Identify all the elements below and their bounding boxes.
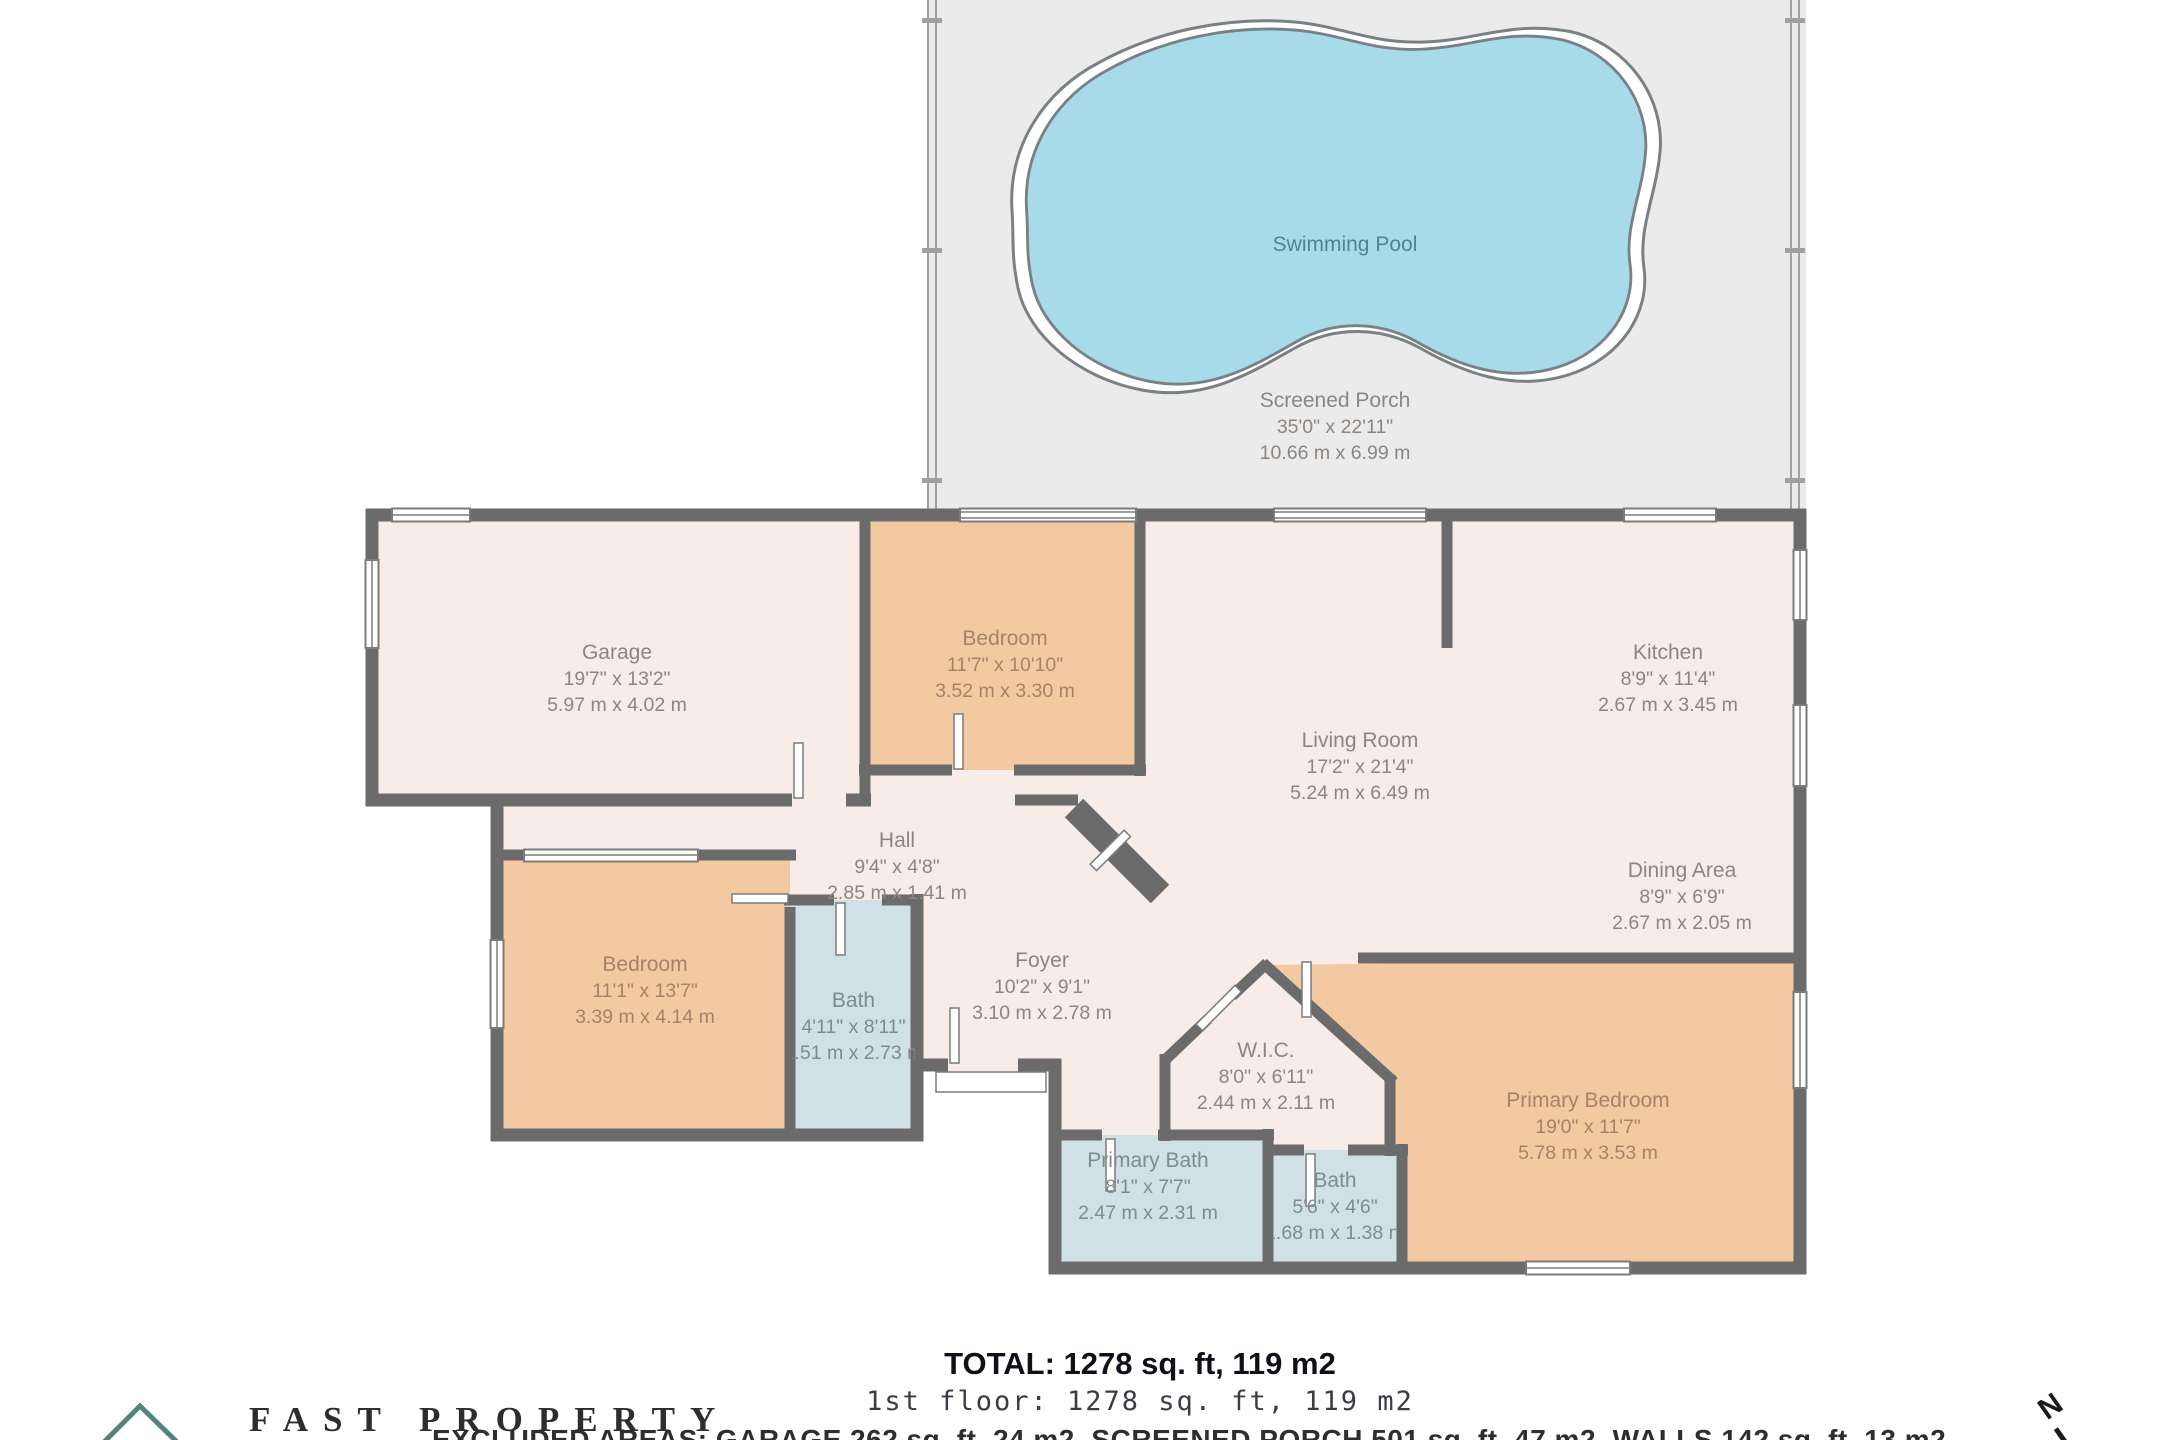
label-bath-left-clip: Bath 4'11" x 8'11" 1.51 m x 2.73 m xyxy=(792,988,915,1078)
room-dims-ft: 4'11" x 8'11" xyxy=(792,1014,915,1040)
room-fill-primary-bath xyxy=(1055,1135,1268,1268)
total-area-text: TOTAL: 1278 sq. ft, 119 m2 xyxy=(944,1346,1336,1382)
first-floor-area-text: 1st floor: 1278 sq. ft, 119 m2 xyxy=(866,1386,1414,1417)
room-name: Bath xyxy=(792,988,915,1014)
room-name: Bath xyxy=(1274,1168,1396,1194)
label-bath-small: Bath 5'6" x 4'6" 1.68 m x 1.38 m xyxy=(1274,1168,1396,1246)
room-dims-m: 1.51 m x 2.73 m xyxy=(792,1040,915,1066)
room-dims-ft: 5'6" x 4'6" xyxy=(1274,1194,1396,1220)
label-bath-small-clip: Bath 5'6" x 4'6" 1.68 m x 1.38 m xyxy=(1274,1168,1396,1258)
room-dims-m: 1.68 m x 1.38 m xyxy=(1274,1220,1396,1246)
house-floor xyxy=(366,509,1806,1274)
room-fill-bedroom-top xyxy=(865,515,1140,770)
logo-house-icon xyxy=(48,1376,233,1440)
floorplan-drawing xyxy=(0,0,2160,1440)
label-bath-left: Bath 4'11" x 8'11" 1.51 m x 2.73 m xyxy=(792,988,915,1066)
floorplan-page: Swimming Pool Screened Porch 35'0" x 22'… xyxy=(0,0,2160,1440)
fast-property-photos-logo: FAST PROPERTY PHOTOS xyxy=(48,1376,730,1440)
